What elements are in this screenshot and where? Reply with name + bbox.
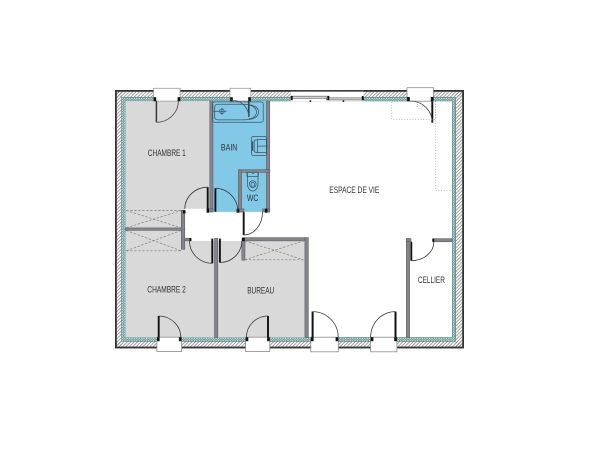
- svg-text:CHAMBRE 2: CHAMBRE 2: [147, 284, 186, 295]
- svg-text:CHAMBRE 1: CHAMBRE 1: [148, 147, 186, 158]
- svg-text:BAIN: BAIN: [221, 141, 238, 152]
- svg-text:WC: WC: [247, 192, 259, 203]
- svg-text:ESPACE DE VIE: ESPACE DE VIE: [329, 184, 379, 195]
- svg-text:BUREAU: BUREAU: [247, 285, 274, 296]
- svg-text:CELLIER: CELLIER: [418, 274, 445, 285]
